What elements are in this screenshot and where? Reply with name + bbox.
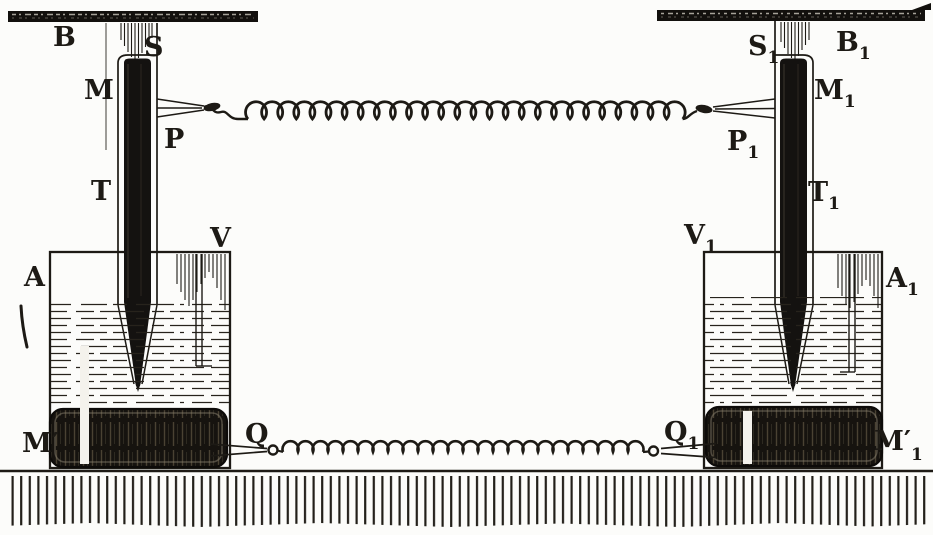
- label-T: T: [91, 176, 111, 207]
- label-S: S: [144, 32, 164, 63]
- mercury-block-right: [706, 407, 882, 466]
- mercury-block-left: [50, 409, 227, 467]
- ground-hatching: [8, 476, 930, 527]
- label-Q: Q: [245, 419, 269, 450]
- ground: [0, 471, 933, 535]
- label-B: B: [53, 22, 76, 53]
- label-M-prime: M′: [22, 428, 59, 459]
- highlight-slit-left: [80, 346, 89, 464]
- support-beam-left: [8, 11, 258, 22]
- label-A: A: [23, 262, 46, 293]
- figure-engraving: B S M P T A V M′ Q S1 B1 M1 P1 T1 V1 A1 …: [0, 0, 933, 535]
- label-M: M: [84, 75, 114, 106]
- highlight-slit-right: [743, 411, 752, 464]
- label-P: P: [164, 124, 184, 155]
- label-V: V: [209, 223, 232, 254]
